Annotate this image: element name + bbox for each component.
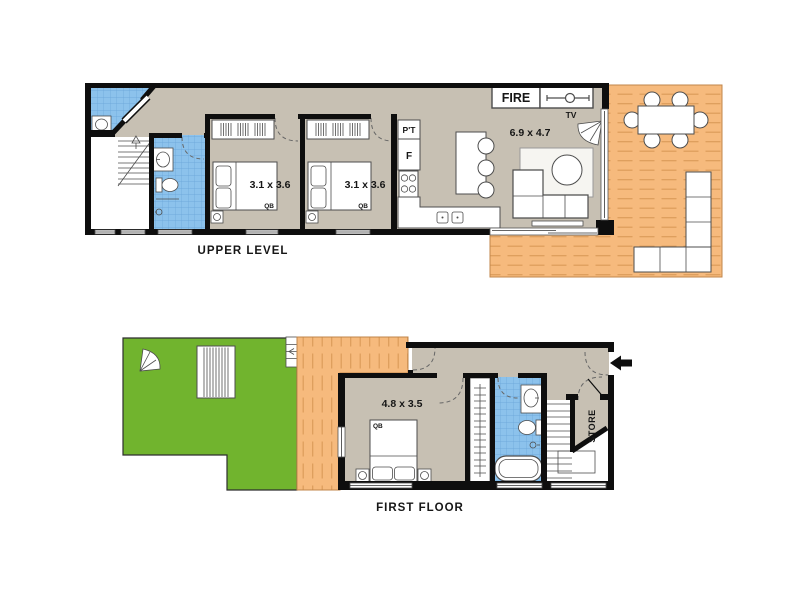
bedroom1-dimensions: 3.1 x 3.6 — [250, 179, 291, 191]
store-label: STORE — [587, 409, 597, 442]
fire-label: FIRE — [502, 91, 530, 105]
first-floor-label: FIRST FLOOR — [376, 502, 464, 514]
tv-unit — [532, 221, 583, 226]
bedroom2-bed-label: QB — [358, 203, 368, 210]
living-dimensions: 6.9 x 4.7 — [510, 127, 551, 139]
upper-level-plan: 3.1 x 3.6 QB 3.1 x 3.6 QB 6.9 x 4.7 FIRE… — [85, 83, 722, 277]
upper-level-label: UPPER LEVEL — [198, 245, 289, 257]
coffee-table — [552, 155, 582, 185]
bathtub-icon — [495, 456, 542, 481]
sliding-door-south — [490, 228, 598, 235]
bedside-table — [356, 469, 369, 482]
garden-bench — [197, 346, 235, 398]
floor-plan-sheet: 3.1 x 3.6 QB 3.1 x 3.6 QB 6.9 x 4.7 FIRE… — [0, 0, 803, 596]
pantry-label: P'T — [403, 125, 417, 135]
bedside-table — [306, 211, 318, 223]
first-floor-plan: 4.8 x 3.5 QB STORE FIRST FLOOR — [123, 337, 632, 514]
outdoor-table — [638, 106, 694, 134]
cooktop-icon — [399, 171, 418, 197]
vanity-sink-icon — [153, 148, 173, 171]
bedroom1-bed-label: QB — [264, 203, 274, 210]
first-bedroom-dimensions: 4.8 x 3.5 — [382, 398, 423, 410]
tv-label: TV — [566, 110, 577, 120]
entry-arrow-icon — [610, 356, 632, 371]
stools — [478, 138, 494, 198]
toilet-icon — [519, 420, 543, 435]
fridge-label: F — [406, 151, 412, 162]
first-wardrobe — [470, 378, 490, 482]
bedroom2-dimensions: 3.1 x 3.6 — [345, 179, 386, 191]
bedside-table — [418, 469, 431, 482]
bedside-table — [211, 211, 223, 223]
sliding-door-east — [601, 109, 608, 220]
vanity-sink-icon — [521, 385, 542, 413]
first-bedroom-bed-label: QB — [373, 423, 383, 430]
